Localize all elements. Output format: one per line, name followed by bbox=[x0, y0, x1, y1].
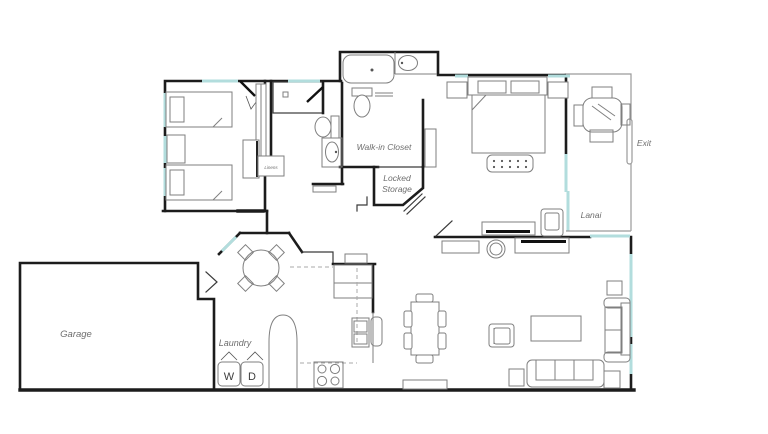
sideboard bbox=[403, 380, 447, 389]
shower-door bbox=[307, 87, 323, 102]
linens-closet: Linens bbox=[258, 156, 284, 176]
locked-storage-label-2: Storage bbox=[382, 184, 412, 194]
patio-chair-top bbox=[592, 87, 612, 98]
garage-label: Garage bbox=[60, 329, 92, 340]
washer-label: W bbox=[224, 371, 235, 383]
locked-storage: Locked Storage bbox=[382, 173, 412, 194]
bath-mat bbox=[313, 186, 336, 192]
pedestal-sink bbox=[322, 138, 342, 167]
master-bedroom-furniture bbox=[447, 77, 568, 236]
washer: W bbox=[218, 362, 240, 386]
patio-table bbox=[583, 98, 622, 132]
dryer-label: D bbox=[248, 371, 256, 383]
living-armchair bbox=[489, 324, 514, 347]
hall-bathroom bbox=[283, 92, 342, 192]
king-bed bbox=[468, 77, 547, 153]
exit-label: Exit bbox=[637, 138, 652, 148]
floorplan-drawing: Linens Wal bbox=[0, 0, 768, 434]
towel-bar bbox=[375, 93, 393, 96]
stove bbox=[314, 362, 343, 388]
sofa bbox=[527, 360, 604, 387]
master-door bbox=[436, 221, 452, 236]
dryer: D bbox=[241, 362, 263, 386]
toilet-master bbox=[352, 88, 372, 117]
media-console-tv bbox=[515, 238, 569, 253]
cabinet bbox=[442, 241, 479, 253]
stool bbox=[487, 240, 505, 258]
end-table-left bbox=[509, 369, 524, 386]
coffee-table bbox=[531, 316, 581, 341]
laundry: Laundry W D bbox=[218, 338, 263, 386]
master-armchair bbox=[541, 209, 563, 236]
end-table-top bbox=[607, 281, 622, 295]
interior-walls bbox=[265, 81, 423, 363]
lanai-label: Lanai bbox=[581, 210, 603, 220]
living-room-furniture bbox=[403, 238, 630, 389]
pantry-arch bbox=[269, 315, 297, 388]
laundry-label: Laundry bbox=[219, 338, 252, 348]
master-dresser-tv bbox=[482, 222, 535, 235]
garage-door bbox=[206, 272, 217, 292]
closet-shelf bbox=[425, 129, 436, 167]
refrigerator bbox=[334, 265, 372, 298]
fridge-vent bbox=[345, 254, 367, 263]
nightstand-left bbox=[447, 82, 467, 98]
patio-chair-left bbox=[574, 105, 583, 126]
linens-label: Linens bbox=[264, 165, 278, 170]
twin-bed-1 bbox=[166, 92, 232, 127]
storage-door bbox=[404, 194, 425, 214]
locked-storage-label-1: Locked bbox=[383, 173, 411, 183]
breakfast-nook bbox=[238, 245, 285, 292]
floorplan-canvas: Linens Wal bbox=[0, 0, 768, 434]
lanai-furniture: Lanai bbox=[574, 87, 630, 220]
bench-ottoman bbox=[487, 155, 533, 172]
walk-in-closet-label: Walk-in Closet bbox=[357, 142, 412, 152]
vanity-sink bbox=[395, 52, 437, 74]
twin-bed-2 bbox=[166, 165, 232, 200]
loveseat bbox=[604, 298, 630, 362]
exit-door bbox=[627, 119, 632, 164]
dresser bbox=[243, 140, 259, 178]
toilet-hall bbox=[315, 116, 339, 138]
dining-table bbox=[404, 294, 446, 363]
round-table bbox=[243, 250, 279, 286]
kitchen bbox=[269, 254, 382, 388]
nightstand-right bbox=[548, 82, 568, 98]
shower-drain bbox=[283, 92, 288, 97]
laundry-bifold-doors bbox=[221, 352, 263, 360]
kitchen-sink bbox=[352, 318, 369, 347]
bedroom2-door bbox=[240, 81, 255, 96]
nightstand bbox=[167, 135, 185, 163]
bathtub bbox=[343, 55, 394, 83]
end-table-bottom bbox=[604, 371, 620, 388]
